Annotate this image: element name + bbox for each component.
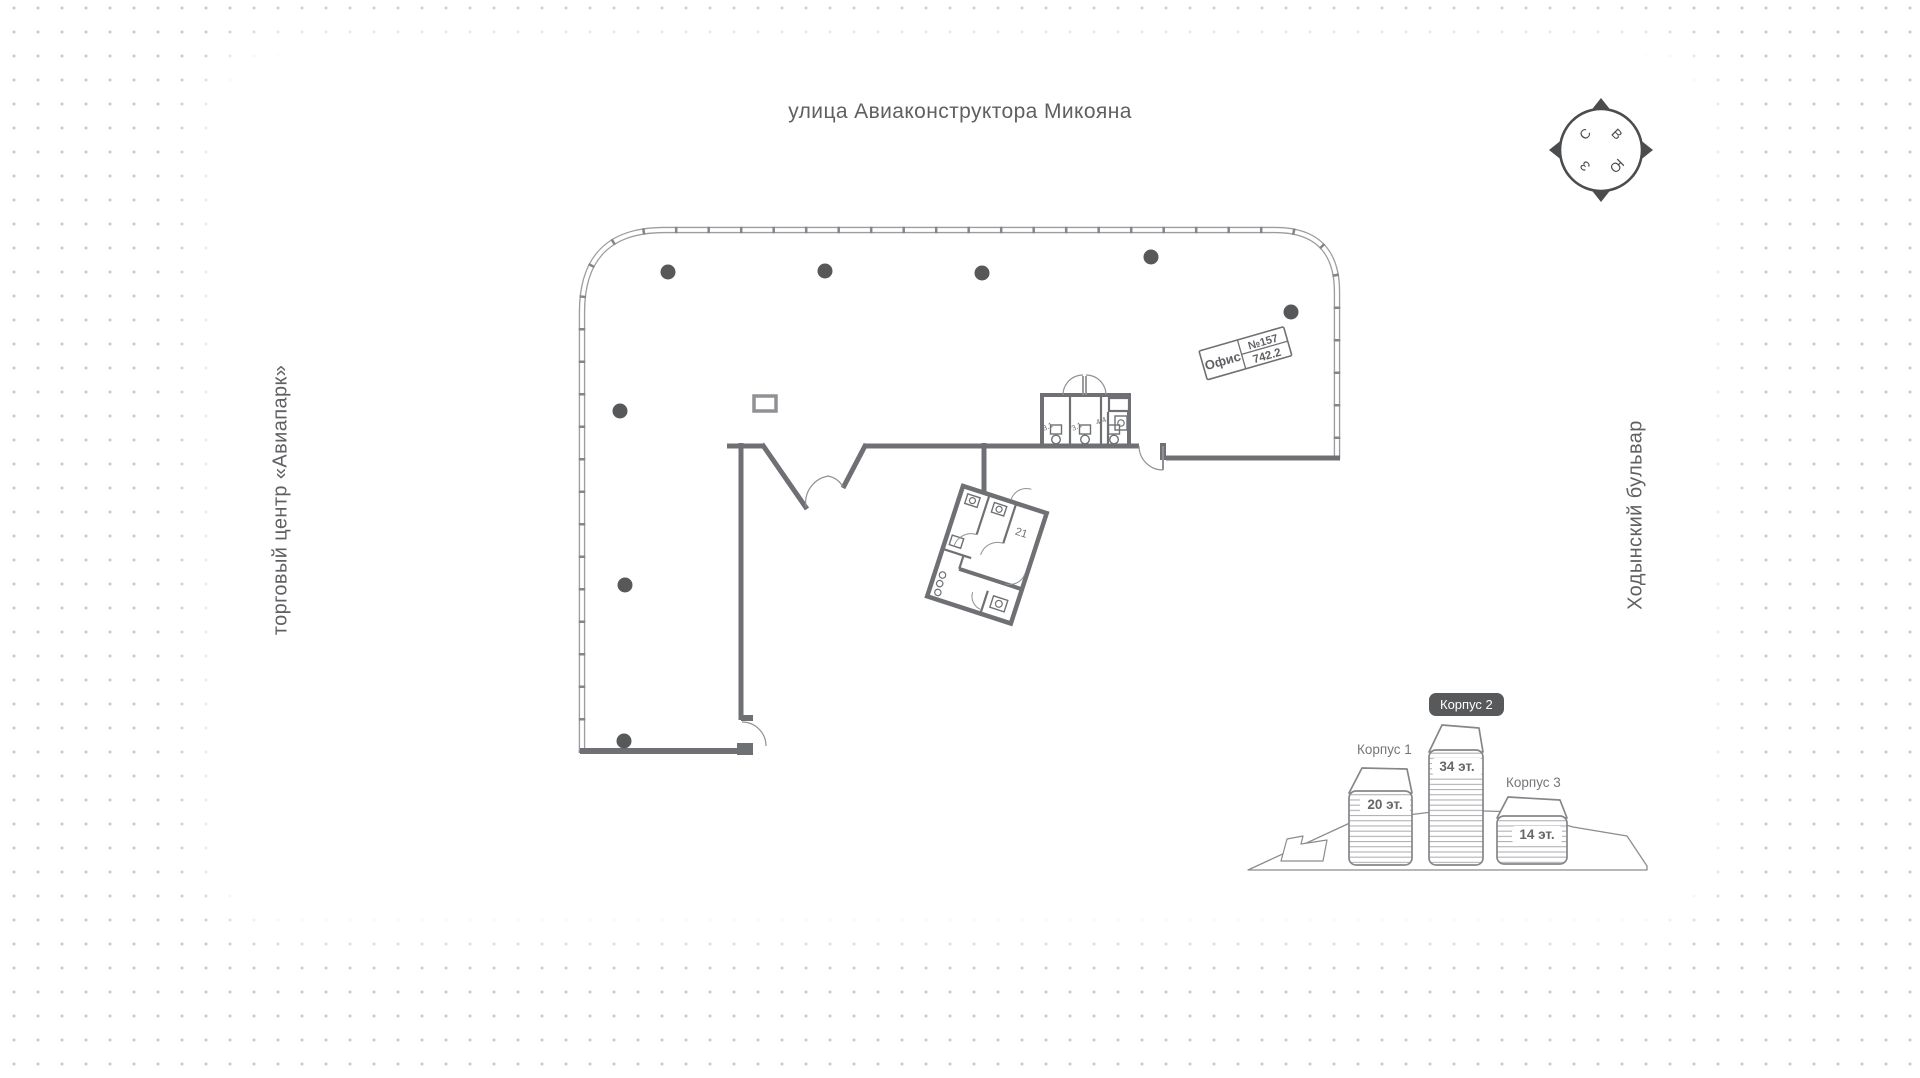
tower-korpus-2[interactable] xyxy=(1429,725,1483,865)
office-tag[interactable]: Офис №157 742.2 xyxy=(1199,327,1292,380)
column-dot xyxy=(1144,250,1159,265)
shopping-center-label: торговый центр «Авиапарк» xyxy=(270,365,293,635)
column-dot xyxy=(818,264,833,279)
columns xyxy=(613,250,1299,749)
korpus-2-badge[interactable]: Корпус 2 xyxy=(1429,693,1504,716)
wc-block: 3.1 3.1 4.4 xyxy=(1040,375,1131,446)
column-dot xyxy=(661,265,676,280)
wc-label-2: 3.1 xyxy=(1070,420,1083,433)
korpus-1-label[interactable]: Корпус 1 xyxy=(1357,742,1412,757)
korpus-2-floors: 34 эт. xyxy=(1432,758,1482,775)
wc-label-3: 4.4 xyxy=(1095,415,1108,427)
korpus-3-label[interactable]: Корпус 3 xyxy=(1506,775,1561,790)
shaft-rect xyxy=(754,396,776,411)
column-dot xyxy=(613,404,628,419)
boulevard-label: Ходынский бульвар xyxy=(1625,420,1648,610)
column-dot xyxy=(617,734,632,749)
tower-korpus-1[interactable] xyxy=(1349,768,1412,865)
column-dot xyxy=(618,578,633,593)
compass-icon: С В Ю З xyxy=(1549,98,1653,202)
core-block-21: 21 xyxy=(927,469,1052,624)
korpus-3-floors: 14 эт. xyxy=(1512,826,1562,843)
buildings-diagram-graphic xyxy=(1248,725,1647,870)
column-dot xyxy=(1284,305,1299,320)
toilet-fixtures xyxy=(1051,416,1128,444)
column-dot xyxy=(975,266,990,281)
korpus-1-floors: 20 эт. xyxy=(1360,796,1410,813)
page: 3.1 3.1 4.4 xyxy=(0,0,1920,1078)
street-title: улица Авиаконструктора Микояна xyxy=(788,100,1132,124)
